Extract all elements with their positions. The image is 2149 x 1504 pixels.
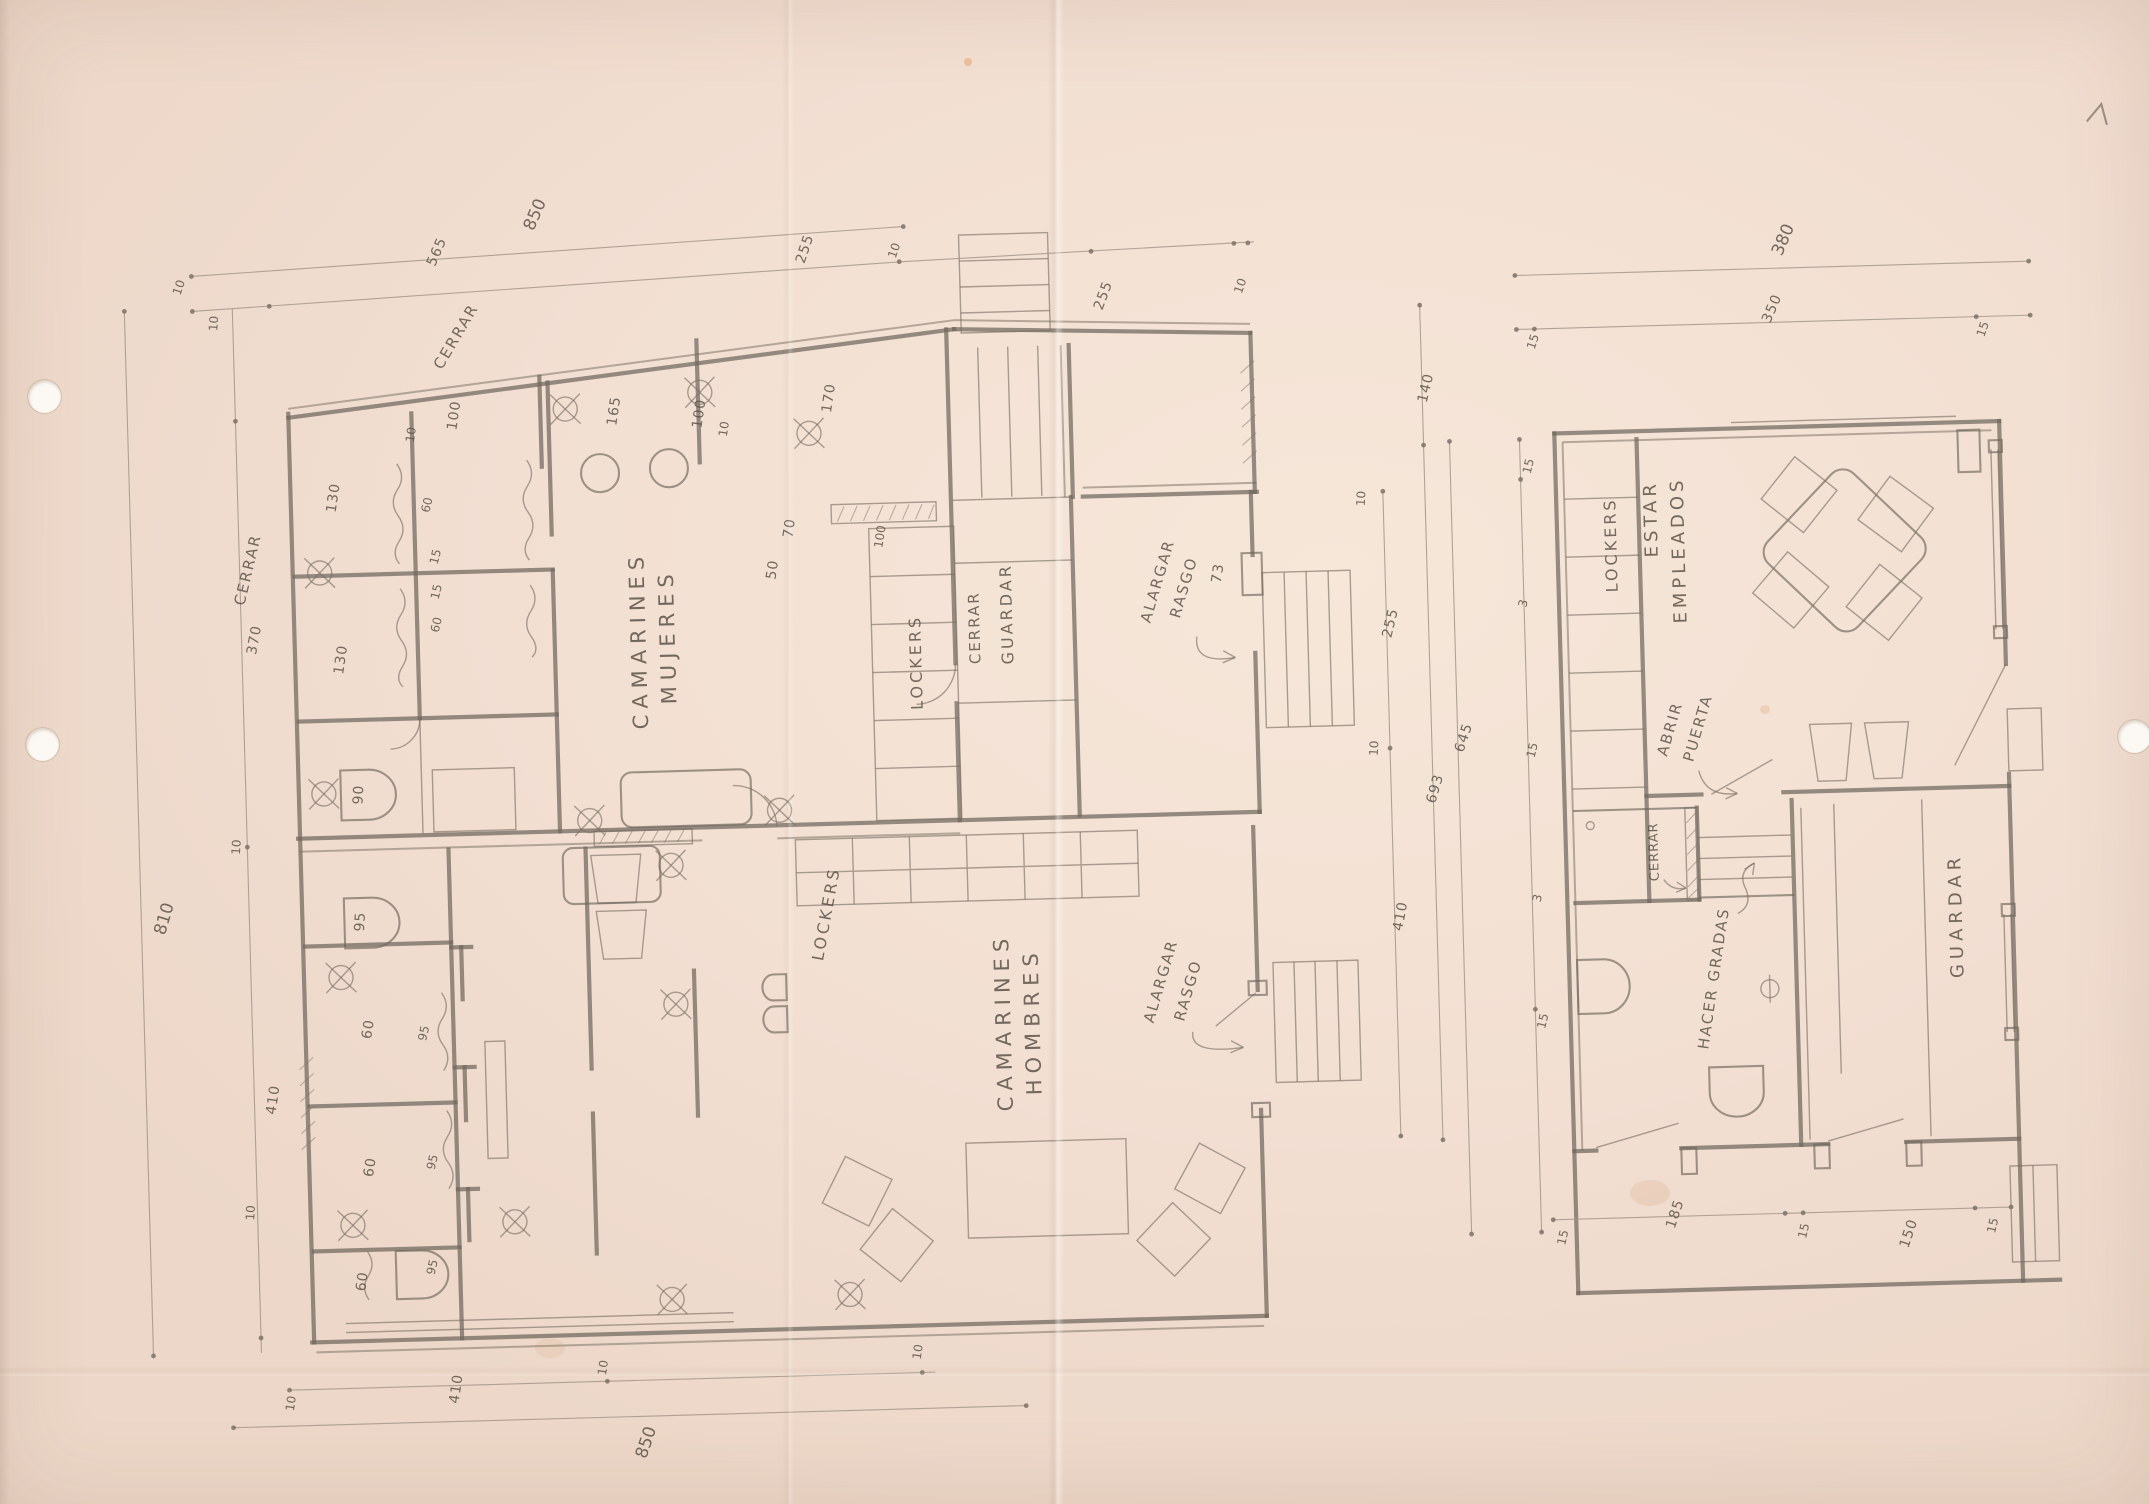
chair: [1846, 564, 1922, 640]
shower-curtain-icon: [437, 993, 448, 1071]
label-lockers-women: LOCKERS: [905, 615, 927, 710]
arrow: [1193, 1030, 1244, 1050]
label-estar-empleados: EMPLEADOS: [1667, 476, 1692, 623]
table: [1757, 463, 1932, 638]
label-lockers: LOCKERS: [1600, 497, 1622, 592]
dim: 370: [244, 624, 265, 656]
right-plan-dimensions: 380 15 350 15 645 15 3 15 3 15 15 185 15…: [1437, 214, 2058, 1263]
urinal-icon: [762, 974, 787, 1001]
label-cerrar-left: CERRAR: [231, 532, 265, 607]
bench: [432, 768, 516, 832]
bench: [346, 1313, 734, 1333]
floor-plan-drawing: 850 10 565 255 10 255 10 810 10 370 10 4…: [0, 0, 2149, 1504]
sink-icon: [649, 449, 688, 488]
label-abrir-puerta: PUERTA: [1679, 692, 1716, 763]
urinal-icon: [763, 1006, 788, 1033]
dim: 185: [1663, 1197, 1688, 1230]
dim: 565: [424, 235, 450, 269]
dim: 60: [359, 1018, 378, 1040]
dim: 70: [780, 517, 799, 539]
dim: 693: [1423, 772, 1447, 805]
dim: 150: [1897, 1217, 1922, 1250]
hole-punch-icon: [26, 728, 59, 761]
dim: 100: [444, 400, 464, 432]
chair: [1137, 1203, 1211, 1277]
label-lockers-men: LOCKERS: [808, 865, 844, 962]
shower-curtain-icon: [392, 464, 404, 564]
toilet-icon: [340, 769, 396, 821]
sketch-sheet: 850 10 565 255 10 255 10 810 10 370 10 4…: [0, 0, 2149, 1504]
dim: 15: [1974, 320, 1992, 339]
label-closet-cerrar: CERRAR: [964, 591, 984, 664]
chair: [860, 1209, 933, 1282]
sink-icon: [581, 454, 620, 493]
dim: 10: [206, 315, 221, 331]
stairs: [1262, 570, 1354, 727]
dim: 10: [716, 420, 732, 437]
stairs: [959, 233, 1051, 333]
dim: 10: [170, 278, 188, 297]
seat: [591, 854, 642, 903]
dim: 10: [229, 839, 244, 855]
scan-edge-shadow: [0, 0, 10, 1504]
dim: 10: [1231, 276, 1249, 295]
seat: [1810, 723, 1854, 781]
dim: 10: [885, 241, 903, 260]
dim: 73: [1209, 562, 1228, 584]
dim: 15: [1524, 741, 1541, 759]
label-cerrar: CERRAR: [1646, 822, 1663, 881]
corner-check-icon: [2086, 104, 2107, 126]
hole-punch-icon: [28, 380, 61, 413]
dim: 255: [1379, 607, 1401, 640]
dim: 50: [763, 559, 782, 581]
label-alargar-rasgo-2: RASGO: [1170, 958, 1205, 1024]
dim: 95: [415, 1024, 432, 1042]
dim: 165: [604, 395, 624, 427]
dim: 15: [428, 583, 445, 601]
shower-curtain-icon: [526, 585, 537, 657]
dim: 410: [1390, 900, 1411, 932]
dim: 95: [424, 1258, 441, 1276]
dim: 60: [428, 616, 445, 634]
dim: 410: [447, 1373, 467, 1405]
dim: 10: [243, 1205, 258, 1221]
dim: 170: [819, 382, 839, 414]
shower-curtain-icon: [396, 589, 408, 687]
dim: 10: [1367, 740, 1382, 756]
right-plan-fixtures: [1563, 453, 1950, 1121]
label-camarines-mujeres: CAMARINES: [624, 551, 653, 730]
label-camarines-hombres: HOMBRES: [1018, 947, 1046, 1096]
dim: 15: [1795, 1222, 1812, 1240]
toilet-icon: [1709, 1066, 1764, 1117]
dim: 95: [424, 1153, 441, 1171]
dim: 10: [1354, 490, 1369, 506]
dim-bottom-total: 850: [632, 1424, 661, 1461]
seat: [1864, 722, 1910, 779]
dim: 60: [353, 1270, 372, 1292]
label-closet-guardar: GUARDAR: [996, 563, 1018, 665]
dim: 15: [1520, 457, 1537, 475]
stairs: [1273, 960, 1361, 1082]
dim: 15: [427, 548, 444, 566]
dim-left-total: 810: [150, 901, 178, 938]
chair: [1753, 552, 1829, 628]
table: [966, 1139, 1129, 1238]
dim-top-total: 850: [520, 196, 551, 234]
dim: 15: [1554, 1228, 1571, 1246]
dim-top-total: 380: [1768, 221, 1799, 259]
dim: 60: [418, 496, 435, 514]
right-plan: 380 15 350 15 645 15 3 15 3 15 15 185 15…: [1437, 214, 2060, 1296]
label-camarines-mujeres: MUJERES: [654, 568, 682, 705]
label-guardar: GUARDAR: [1944, 853, 1968, 979]
dim: 10: [595, 1359, 611, 1376]
dim: 255: [793, 232, 818, 265]
shower-curtain-icon: [522, 460, 534, 560]
dim: 350: [1759, 292, 1785, 326]
dim: 10: [910, 1343, 926, 1360]
toilet-icon: [1577, 959, 1630, 1014]
dim-left-total: 645: [1452, 721, 1477, 754]
bench: [620, 769, 751, 828]
right-plan-walls: [1554, 414, 2060, 1293]
chair: [1175, 1143, 1245, 1213]
label-camarines-hombres: CAMARINES: [989, 932, 1018, 1111]
dim: 60: [361, 1156, 380, 1178]
dim: 95: [352, 911, 369, 932]
bench: [485, 1041, 508, 1159]
dim: 15: [1524, 332, 1542, 351]
dim: 100: [871, 524, 888, 549]
arrow: [1196, 635, 1235, 659]
arrow: [1664, 879, 1686, 889]
chair: [1761, 457, 1837, 533]
dim: 10: [403, 426, 419, 443]
dim: 15: [1534, 1012, 1551, 1030]
dim: 255: [1091, 279, 1116, 312]
label-estar-empleados: ESTAR: [1640, 480, 1663, 558]
dim: 3: [1515, 598, 1530, 609]
chair: [822, 1156, 892, 1226]
left-plan: 850 10 565 255 10 255 10 810 10 370 10 4…: [119, 171, 1467, 1475]
dim: 130: [324, 482, 344, 514]
dim: 140: [1415, 372, 1437, 405]
toilet-icon: [396, 1250, 449, 1299]
hole-punch-icon: [2118, 720, 2149, 753]
seat: [596, 910, 647, 959]
dim: 15: [1984, 1216, 2001, 1234]
dim: 10: [283, 1395, 299, 1412]
label-cerrar-top: CERRAR: [430, 300, 482, 372]
dim: 100: [689, 398, 709, 430]
right-plan-labels: LOCKERS ESTAR EMPLEADOS ABRIR PUERTA CER…: [1600, 469, 1971, 1053]
label-hacer-gradas: HACER GRADAS: [1694, 906, 1733, 1050]
dim: 410: [263, 1084, 283, 1116]
shower-curtain-icon: [442, 1111, 453, 1189]
dim: 90: [350, 784, 367, 805]
dim: 130: [331, 644, 351, 676]
